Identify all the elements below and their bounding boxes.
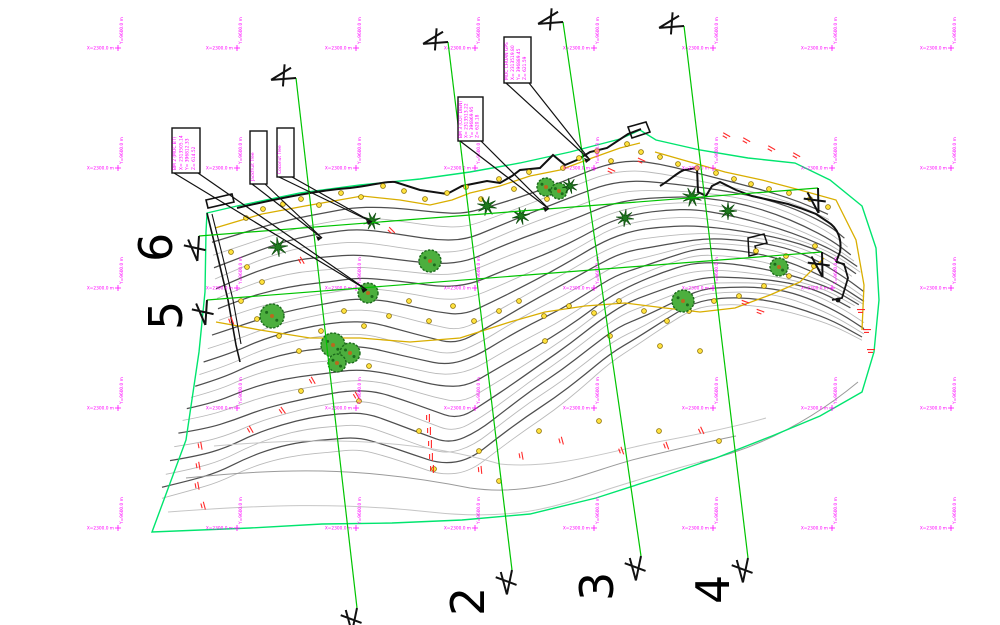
spot-elevation-point (387, 314, 392, 319)
svg-text:Y=9600.0 m: Y=9600.0 m (357, 257, 363, 285)
slope-tick (618, 447, 623, 455)
slope-tick (198, 442, 202, 450)
spot-elevation-point (402, 189, 407, 194)
svg-text:X=2300.0 m: X=2300.0 m (87, 406, 114, 412)
svg-text:Y=9600.0 m: Y=9600.0 m (357, 497, 363, 525)
svg-text:Y=9600.0 m: Y=9600.0 m (714, 377, 720, 405)
svg-text:Y=9600.0 m: Y=9600.0 m (595, 497, 601, 525)
grid-coordinate-label: X=2300.0 mY=9600.0 m (444, 377, 482, 411)
contour-line (162, 305, 862, 499)
section-cut-marker (336, 603, 367, 625)
callout-text: X= 2313513.22 (464, 103, 470, 138)
spot-elevation-point (658, 155, 663, 160)
spot-elevation-point (542, 314, 547, 319)
slope-tick (756, 309, 764, 314)
spot-elevation-point (445, 191, 450, 196)
grid-coordinate-label: X=2300.0 mY=9600.0 m (801, 377, 839, 411)
svg-text:X=2300.0 m: X=2300.0 m (801, 166, 828, 172)
callout-text: BM 3 (COT DIEN) (458, 101, 464, 138)
grid-coordinate-label: X=2300.0 mY=9600.0 m (920, 497, 958, 531)
spot-elevation-point (359, 195, 364, 200)
section-number: 5 (139, 301, 193, 330)
spot-elevation-point (676, 162, 681, 167)
svg-text:X=2300.0 m: X=2300.0 m (325, 406, 352, 412)
callout-text: Jackfruit Tree (250, 152, 256, 182)
callout-text: Coconut Tree (277, 145, 283, 174)
svg-text:X=2300.0 m: X=2300.0 m (444, 286, 471, 292)
spot-elevation-point (299, 197, 304, 202)
grid-coordinate-label: X=2300.0 mY=9600.0 m (920, 377, 958, 411)
spot-elevation-point (417, 429, 422, 434)
spot-elevation-point (749, 182, 754, 187)
spot-elevation-point (537, 429, 542, 434)
svg-text:Y=9600.0 m: Y=9600.0 m (476, 17, 482, 45)
svg-text:X=2300.0 m: X=2300.0 m (206, 286, 233, 292)
spot-elevation-point (543, 339, 548, 344)
svg-text:X=2300.0 m: X=2300.0 m (563, 406, 590, 412)
section-line-6[interactable]: 6 (129, 185, 829, 262)
tree-canopy[interactable] (328, 354, 346, 372)
tree-palm[interactable] (719, 202, 737, 220)
svg-text:X=2300.0 m: X=2300.0 m (206, 406, 233, 412)
spot-elevation-point (754, 249, 759, 254)
spot-elevation-point (497, 177, 502, 182)
svg-text:X=2300.0 m: X=2300.0 m (444, 166, 471, 172)
svg-text:Y=9600.0 m: Y=9600.0 m (476, 377, 482, 405)
svg-text:Y=9600.0 m: Y=9600.0 m (952, 497, 958, 525)
svg-text:X=2300.0 m: X=2300.0 m (920, 166, 947, 172)
svg-text:Y=9600.0 m: Y=9600.0 m (833, 137, 839, 165)
svg-text:X=2300.0 m: X=2300.0 m (920, 406, 947, 412)
tree-canopy[interactable] (770, 258, 788, 276)
spot-elevation-point (297, 349, 302, 354)
svg-text:X=2300.0 m: X=2300.0 m (801, 406, 828, 412)
grid-coordinate-label: X=2300.0 mY=9600.0 m (87, 137, 125, 171)
spot-elevation-point (826, 205, 831, 210)
slope-tick (559, 437, 564, 445)
callout-text: Y= 396812.33 (185, 138, 191, 171)
svg-text:Y=9600.0 m: Y=9600.0 m (357, 17, 363, 45)
spot-elevation-point (512, 187, 517, 192)
callout-text: MOC CHUAN GPS (504, 42, 510, 80)
spot-elevation-point (642, 309, 647, 314)
tree-canopy[interactable] (419, 250, 441, 272)
spot-elevation-point (319, 329, 324, 334)
slope-tick (309, 377, 315, 385)
section-cut-marker (270, 62, 298, 89)
svg-text:Y=9600.0 m: Y=9600.0 m (833, 257, 839, 285)
spot-elevation-point (737, 294, 742, 299)
svg-text:X=2300.0 m: X=2300.0 m (206, 166, 233, 172)
slope-tick (767, 146, 775, 152)
svg-text:Y=9600.0 m: Y=9600.0 m (119, 17, 125, 45)
svg-text:X=2300.0 m: X=2300.0 m (682, 406, 709, 412)
svg-text:X=2300.0 m: X=2300.0 m (682, 286, 709, 292)
spot-elevation-point (617, 299, 622, 304)
callout-text: Z= 614.52 (191, 146, 197, 170)
svg-text:Y=9600.0 m: Y=9600.0 m (952, 17, 958, 45)
callout-text: Y= 396869.95 (469, 106, 475, 139)
grid-coordinate-label: X=2300.0 mY=9600.0 m (325, 497, 363, 531)
spot-elevation-point (477, 449, 482, 454)
section-cut-marker (537, 6, 565, 33)
slope-tick (722, 133, 730, 139)
svg-text:X=2300.0 m: X=2300.0 m (920, 286, 947, 292)
slope-tick (247, 426, 253, 434)
svg-text:Y=9600.0 m: Y=9600.0 m (357, 377, 363, 405)
svg-text:X=2300.0 m: X=2300.0 m (563, 526, 590, 532)
spot-elevation-point (657, 429, 662, 434)
svg-text:Y=9600.0 m: Y=9600.0 m (952, 257, 958, 285)
spot-elevation-point (277, 334, 282, 339)
spot-elevation-point (577, 156, 582, 161)
grid-coordinate-label: X=2300.0 mY=9600.0 m (682, 497, 720, 531)
spot-elevation-point (245, 265, 250, 270)
grid-coordinate-label: X=2300.0 mY=9600.0 m (444, 17, 482, 51)
callout-text: X= 2313505.14 (178, 135, 184, 170)
slope-tick (857, 310, 865, 313)
spot-elevation-point (698, 349, 703, 354)
spot-elevation-point (813, 244, 818, 249)
spot-elevation-points (229, 142, 831, 484)
slope-tick (298, 257, 304, 265)
slope-tick (196, 462, 200, 470)
svg-text:Y=9600.0 m: Y=9600.0 m (833, 377, 839, 405)
svg-text:Y=9600.0 m: Y=9600.0 m (595, 17, 601, 45)
svg-text:Y=9600.0 m: Y=9600.0 m (714, 137, 720, 165)
slope-tick (427, 414, 430, 422)
svg-text:Y=9600.0 m: Y=9600.0 m (238, 137, 244, 165)
spot-elevation-point (787, 274, 792, 279)
svg-text:Y=9600.0 m: Y=9600.0 m (595, 377, 601, 405)
grid-coordinate-label: X=2300.0 mY=9600.0 m (87, 17, 125, 51)
benchmark-callout[interactable]: BM 3 (COT DIEN)X= 2313513.22Y= 396869.95… (458, 97, 549, 212)
spot-elevation-point (639, 150, 644, 155)
svg-text:X=2300.0 m: X=2300.0 m (563, 286, 590, 292)
svg-text:Y=9600.0 m: Y=9600.0 m (119, 257, 125, 285)
section-number: 2 (441, 587, 495, 616)
slope-tick (792, 153, 800, 159)
spot-elevation-point (712, 299, 717, 304)
grid-coordinate-label: X=2300.0 mY=9600.0 m (563, 17, 601, 51)
grid-coordinate-label: X=2300.0 mY=9600.0 m (801, 497, 839, 531)
callout-text: Z= 621.59 (522, 56, 528, 80)
svg-text:Y=9600.0 m: Y=9600.0 m (119, 137, 125, 165)
spot-elevation-point (545, 197, 550, 202)
spot-elevation-point (427, 319, 432, 324)
svg-text:X=2300.0 m: X=2300.0 m (325, 46, 352, 52)
callout-text: Y= 396889.45 (516, 48, 522, 81)
spot-elevation-point (239, 299, 244, 304)
callout-text: BM 2 (MOC BT) (172, 137, 178, 170)
grid-coordinate-label: X=2300.0 mY=9600.0 m (87, 257, 125, 291)
grid-coordinate-label: X=2300.0 mY=9600.0 m (325, 137, 363, 171)
spot-elevation-point (367, 364, 372, 369)
spot-elevation-point (260, 280, 265, 285)
tree-palm[interactable] (616, 209, 634, 227)
svg-text:X=2300.0 m: X=2300.0 m (444, 526, 471, 532)
svg-text:Y=9600.0 m: Y=9600.0 m (952, 377, 958, 405)
spot-elevation-point (665, 319, 670, 324)
spot-elevation-point (787, 191, 792, 196)
svg-text:X=2300.0 m: X=2300.0 m (682, 526, 709, 532)
svg-text:Y=9600.0 m: Y=9600.0 m (714, 497, 720, 525)
grid-coordinate-label: X=2300.0 mY=9600.0 m (206, 137, 244, 171)
grid-coordinate-label: X=2300.0 mY=9600.0 m (206, 497, 244, 531)
grid-coordinate-label: X=2300.0 mY=9600.0 m (920, 137, 958, 171)
svg-text:X=2300.0 m: X=2300.0 m (563, 166, 590, 172)
grid-coordinate-label: X=2300.0 mY=9600.0 m (920, 257, 958, 291)
spot-elevation-point (527, 170, 532, 175)
spot-elevation-point (714, 171, 719, 176)
svg-text:X=2300.0 m: X=2300.0 m (206, 526, 233, 532)
spot-elevation-point (381, 184, 386, 189)
spot-elevation-point (342, 309, 347, 314)
callout-text: Z= 620.18 (475, 114, 481, 138)
svg-text:Y=9600.0 m: Y=9600.0 m (833, 497, 839, 525)
svg-text:X=2300.0 m: X=2300.0 m (682, 166, 709, 172)
spot-elevation-point (609, 159, 614, 164)
spot-elevation-point (592, 311, 597, 316)
svg-text:Y=9600.0 m: Y=9600.0 m (595, 137, 601, 165)
grid-coordinate-label: X=2300.0 mY=9600.0 m (563, 377, 601, 411)
svg-text:Y=9600.0 m: Y=9600.0 m (238, 377, 244, 405)
section-cut-marker (491, 565, 522, 597)
svg-text:X=2300.0 m: X=2300.0 m (920, 526, 947, 532)
spot-elevation-point (732, 177, 737, 182)
grid-coordinate-label: X=2300.0 mY=9600.0 m (920, 17, 958, 51)
spot-elevation-point (317, 203, 322, 208)
svg-text:X=2300.0 m: X=2300.0 m (920, 46, 947, 52)
slope-tick (478, 466, 481, 474)
grid-coordinate-label: X=2300.0 mY=9600.0 m (682, 377, 720, 411)
spot-elevation-point (339, 191, 344, 196)
svg-text:Y=9600.0 m: Y=9600.0 m (833, 17, 839, 45)
section-number: 3 (570, 572, 624, 601)
spot-elevation-point (407, 299, 412, 304)
spot-elevation-point (517, 299, 522, 304)
svg-text:Y=9600.0 m: Y=9600.0 m (476, 497, 482, 525)
spot-elevation-point (497, 309, 502, 314)
section-cut-marker (620, 551, 651, 583)
svg-text:X=2300.0 m: X=2300.0 m (87, 166, 114, 172)
slope-tick (428, 427, 431, 435)
benchmark-callout[interactable]: MOC CHUAN GPSX= 2313519.80Y= 396889.45Z=… (504, 37, 590, 163)
spot-elevation-point (567, 304, 572, 309)
svg-text:Y=9600.0 m: Y=9600.0 m (238, 497, 244, 525)
spot-elevation-point (229, 250, 234, 255)
svg-text:X=2300.0 m: X=2300.0 m (206, 46, 233, 52)
svg-text:X=2300.0 m: X=2300.0 m (801, 526, 828, 532)
spot-elevation-point (432, 467, 437, 472)
spot-elevation-point (362, 324, 367, 329)
section-number: 4 (686, 575, 740, 604)
spot-elevation-point (299, 389, 304, 394)
svg-text:Y=9600.0 m: Y=9600.0 m (714, 17, 720, 45)
svg-text:Y=9600.0 m: Y=9600.0 m (357, 137, 363, 165)
spot-elevation-point (423, 197, 428, 202)
svg-text:Y=9600.0 m: Y=9600.0 m (952, 137, 958, 165)
slope-tick (742, 138, 750, 144)
svg-text:X=2300.0 m: X=2300.0 m (87, 286, 114, 292)
grid-coordinate-label: X=2300.0 mY=9600.0 m (682, 17, 720, 51)
grid-coordinate-label: X=2300.0 mY=9600.0 m (325, 17, 363, 51)
grid-coordinate-label: X=2300.0 mY=9600.0 m (801, 17, 839, 51)
tree-canopy[interactable] (672, 290, 694, 312)
drawing-viewport[interactable]: X=2300.0 mY=9600.0 mX=2300.0 mY=9600.0 m… (0, 0, 1000, 625)
spot-elevation-point (261, 207, 266, 212)
spot-elevation-point (472, 319, 477, 324)
tree-canopy[interactable] (551, 183, 567, 199)
slope-tick (863, 330, 871, 333)
survey-drawing: X=2300.0 mY=9600.0 mX=2300.0 mY=9600.0 m… (0, 0, 1000, 625)
svg-text:X=2300.0 m: X=2300.0 m (801, 286, 828, 292)
spot-elevation-point (625, 142, 630, 147)
grid-coordinate-label: X=2300.0 mY=9600.0 m (87, 377, 125, 411)
slope-tick (429, 440, 432, 448)
svg-text:X=2300.0 m: X=2300.0 m (801, 46, 828, 52)
spot-elevation-point (762, 284, 767, 289)
grid-coordinate-label: X=2300.0 mY=9600.0 m (801, 137, 839, 171)
slope-tick (519, 452, 523, 460)
spot-elevation-point (658, 344, 663, 349)
svg-text:X=2300.0 m: X=2300.0 m (87, 526, 114, 532)
grid-coordinate-label: X=2300.0 mY=9600.0 m (206, 377, 244, 411)
slope-tick (663, 442, 668, 450)
callouts-layer: BM 2 (MOC BT)X= 2313505.14Y= 396812.33Z=… (172, 37, 590, 293)
svg-text:Y=9600.0 m: Y=9600.0 m (119, 377, 125, 405)
svg-text:X=2300.0 m: X=2300.0 m (444, 406, 471, 412)
grid-coordinate-label: X=2300.0 mY=9600.0 m (87, 497, 125, 531)
svg-text:X=2300.0 m: X=2300.0 m (325, 166, 352, 172)
spot-elevation-point (451, 304, 456, 309)
spot-elevation-point (767, 187, 772, 192)
spot-elevation-point (597, 419, 602, 424)
svg-text:X=2300.0 m: X=2300.0 m (87, 46, 114, 52)
svg-text:Y=9600.0 m: Y=9600.0 m (119, 497, 125, 525)
section-number: 6 (129, 233, 183, 262)
tree-palm[interactable] (364, 213, 381, 230)
lower-contour-lines (168, 382, 858, 515)
svg-text:Y=9600.0 m: Y=9600.0 m (238, 257, 244, 285)
tree-canopy[interactable] (260, 304, 284, 328)
grid-coordinate-label: X=2300.0 mY=9600.0 m (206, 17, 244, 51)
callout-text: X= 2313519.80 (510, 45, 516, 80)
spot-elevation-point (717, 439, 722, 444)
spot-elevation-point (255, 317, 260, 322)
svg-text:Y=9600.0 m: Y=9600.0 m (238, 17, 244, 45)
section-cut-marker (658, 10, 686, 37)
